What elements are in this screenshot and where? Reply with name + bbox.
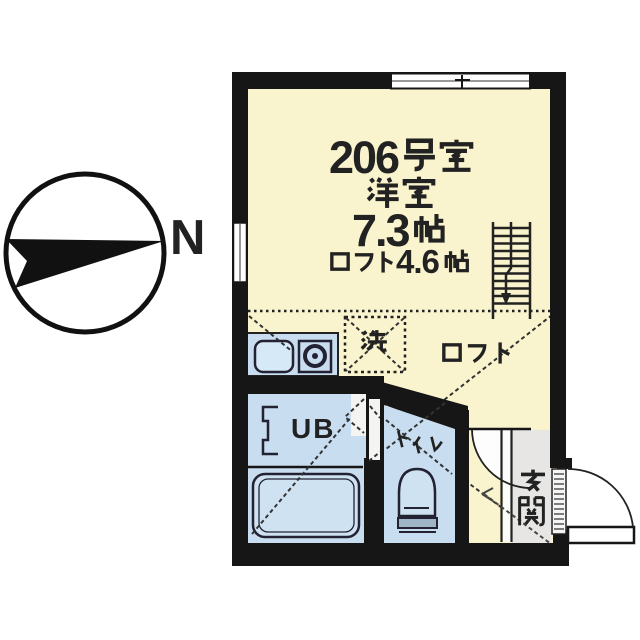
svg-text:206: 206 bbox=[329, 132, 399, 183]
svg-text:N: N bbox=[170, 211, 205, 265]
svg-text:UB: UB bbox=[291, 413, 335, 444]
svg-text:4.6: 4.6 bbox=[396, 243, 440, 280]
